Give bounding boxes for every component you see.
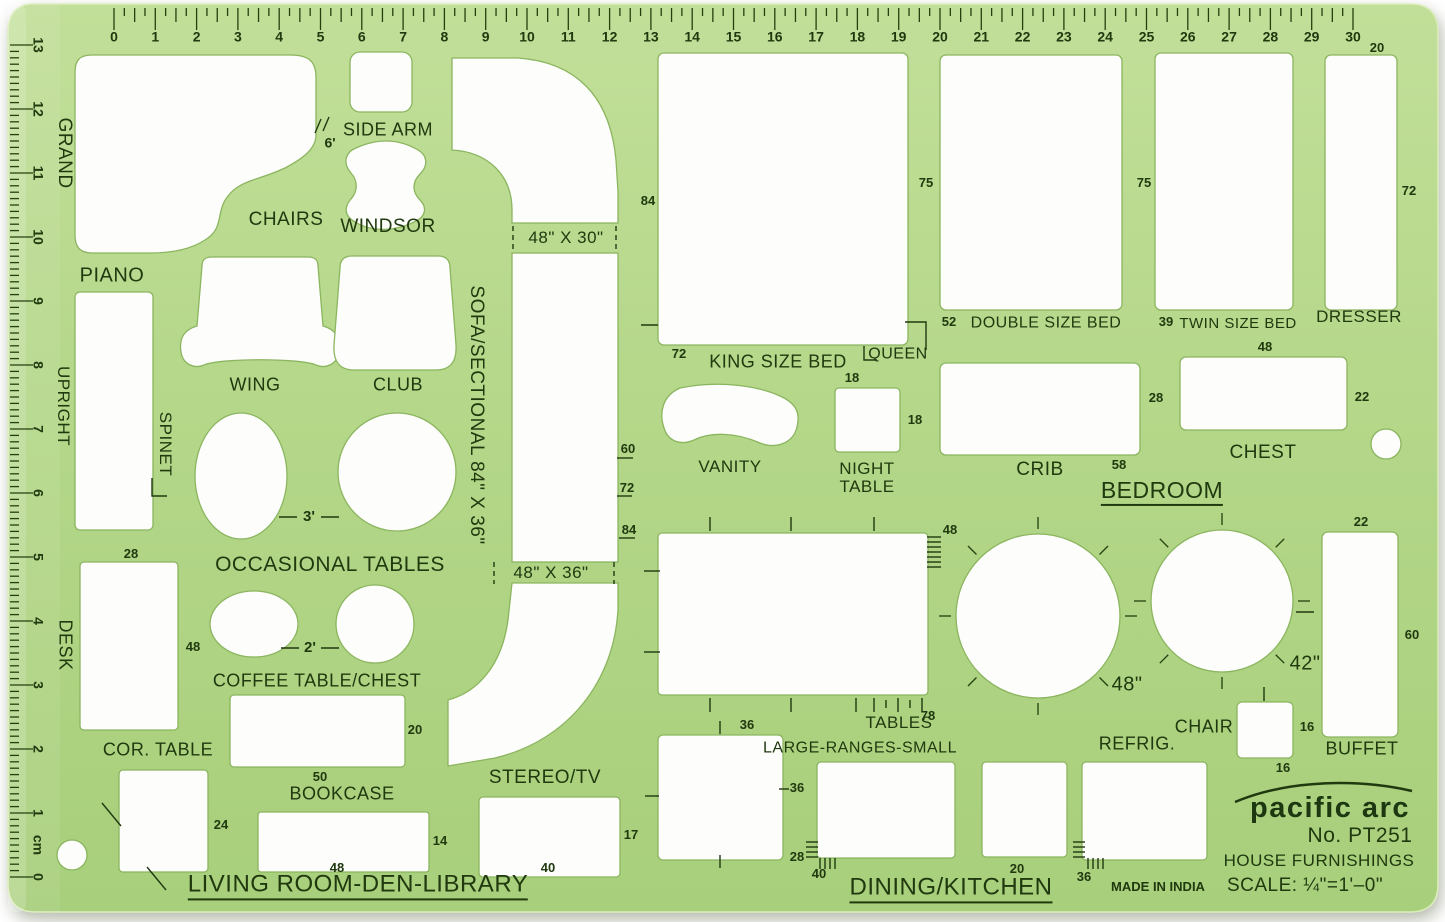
dim-twin-39: 39 [1159,315,1173,329]
ruler-top-number: 18 [850,30,866,45]
dim-dining-48: 48 [943,523,957,537]
coffee-table-cutout [230,695,405,767]
twin-bed-cutout [1155,53,1293,310]
label-side-arm: SIDE ARM [343,121,433,140]
ruler-top-number: 6 [358,30,366,45]
ruler-top-number: 2 [193,30,201,45]
dim-sq-28: 28 [790,850,804,864]
dim-double-52: 52 [942,315,956,329]
upright-piano-cutout [75,292,153,530]
ruler-top-number: 23 [1056,30,1072,45]
ruler-top-number: 29 [1304,30,1320,45]
oval-table-cutout [195,413,287,539]
double-bed-cutout [940,55,1122,310]
template-photo: GRAND UPRIGHT SPINET DESK SOFA/SECTIONAL… [0,0,1445,922]
ruler-left-number: 8 [31,361,46,369]
dresser-cutout [1325,55,1397,310]
dim-coffee-20: 20 [408,723,422,737]
ruler-left-number: 1 [31,809,46,817]
corner-table-cutout [119,770,208,872]
dim-3ft: 3' [303,509,315,525]
ruler-top-number: 10 [519,30,535,45]
label-queen: QUEEN [868,347,927,364]
ruler-top-number: 17 [808,30,824,45]
label-sofa-sectional: SOFA/SECTIONAL 84" X 36" [466,285,486,544]
ruler-top-number: 13 [643,30,659,45]
label-crib: CRIB [1016,460,1063,480]
ruler-left-number: 10 [31,229,46,245]
ruler-left-number: 13 [31,37,46,53]
dim-chair-16a: 16 [1300,720,1314,734]
label-chairs: CHAIRS [249,210,324,230]
brand-product: HOUSE FURNISHINGS [1224,852,1415,870]
dim-double-75: 75 [919,176,933,190]
round-table-cutout [338,413,456,531]
dim-book-14: 14 [433,834,447,848]
ruler-left-number: 11 [31,166,46,181]
dim-sq-36a: 36 [740,718,754,732]
label-chair: CHAIR [1175,718,1234,737]
label-club: CLUB [373,376,423,395]
ruler-left-number: 12 [31,101,46,117]
brand-scale: SCALE: ¼"=1'–0" [1227,876,1383,896]
dim-sofa-bridge2: 48" X 36" [513,564,588,582]
range-small-cutout [982,762,1067,857]
dim-side-72: 72 [620,481,634,495]
ruler-top-number: 24 [1097,30,1113,45]
ruler-top-number: 30 [1345,30,1361,45]
dim-chest-22: 22 [1355,390,1369,404]
dining-chair-cutout [1237,702,1293,758]
hanging-hole-left [57,840,87,870]
dim-book-50: 50 [313,770,327,784]
dim-dresser-20: 20 [1370,41,1384,55]
ruler-top-number: 20 [932,30,948,45]
ruler-top-number: 11 [561,30,576,45]
label-dresser: DRESSER [1316,308,1402,326]
label-bookcase: BOOKCASE [289,785,394,804]
club-chair-cutout [334,256,456,370]
side-arm-chair-cutout [350,52,412,112]
dim-dresser-72: 72 [1402,184,1416,198]
brand-logo: pacific arc [1250,793,1410,823]
ruler-top-number: 3 [234,30,242,45]
round-table-42-cutout [1151,530,1293,672]
label-king-bed: KING SIZE BED [709,353,847,372]
dim-crib-28: 28 [1149,391,1163,405]
dim-buffet-22: 22 [1354,515,1368,529]
dim-6ft: 6' [324,136,335,151]
label-refrig: REFRIG. [1099,735,1176,754]
ruler-top-number: 7 [399,30,407,45]
dim-stereo-17: 17 [624,828,638,842]
dim-2ft: 2' [304,640,316,656]
label-spinet: SPINET [156,412,174,476]
dim-night-18a: 18 [845,371,859,385]
desk-cutout [80,562,178,730]
ruler-top-number: 12 [602,30,618,45]
label-tables: TABLES [866,714,933,732]
ruler-left-number: 0 [31,873,46,881]
section-bedroom: BEDROOM [1101,478,1223,506]
night-table-cutout [835,388,900,452]
dim-king-72: 72 [672,347,686,361]
ruler-top-number: 9 [482,30,490,45]
brand-model: No. PT251 [1308,825,1413,847]
hanging-hole-right [1371,429,1401,459]
dim-buffet-60: 60 [1405,628,1419,642]
sofa-straight-cutout [512,253,618,562]
ruler-top-number: 21 [974,30,990,45]
ruler-left-number: 7 [31,425,46,433]
ruler-top-number: 25 [1139,30,1155,45]
dim-sofa-bridge1: 48" X 30" [528,229,603,247]
range-mid-cutout [817,762,955,858]
dim-desk-48: 48 [186,640,200,654]
ruler-top-number: 22 [1015,30,1031,45]
ruler-left-number: 2 [31,745,46,753]
section-dining-kitchen: DINING/KITCHEN [849,874,1052,903]
ruler-top-number: 15 [726,30,742,45]
chest-cutout [1180,357,1347,430]
label-buffet: BUFFET [1326,740,1399,759]
king-bed-cutout [658,53,908,345]
dim-stereo-40: 40 [541,861,555,875]
ruler-top-number: 0 [110,30,118,45]
refrigerator-cutout [1082,762,1207,860]
ruler-top-number: 8 [440,30,448,45]
ruler-left-number: 6 [31,489,46,497]
buffet-cutout [1322,532,1398,737]
occasional-round-cutout [336,585,414,663]
ruler-left-number: 9 [31,297,46,305]
wing-chair-cutout [181,257,340,366]
dining-table-cutout [658,533,928,695]
ruler-top-number: 27 [1221,30,1237,45]
dim-cor-24: 24 [214,818,228,832]
dim-round-42: 42" [1290,654,1321,675]
dim-desk-28: 28 [124,547,138,561]
dim-side-84: 84 [622,523,636,537]
label-night-table: NIGHT TABLE [824,460,910,496]
label-coffee-table: COFFEE TABLE/CHEST [213,672,421,691]
brand-origin: MADE IN INDIA [1111,880,1205,894]
label-twin-bed: TWIN SIZE BED [1179,316,1296,332]
ruler-top-number: 16 [767,30,783,45]
occasional-oval-cutout [210,591,298,657]
label-piano: PIANO [80,266,145,287]
dim-sq-40: 40 [812,867,826,881]
ruler-left-number: 4 [31,617,46,625]
dim-crib-58: 58 [1112,458,1126,472]
ruler-top-number: 19 [891,30,907,45]
crib-cutout [940,363,1140,455]
ruler-top-number: 4 [275,30,283,45]
label-grand: GRAND [54,117,74,188]
ruler-left-number: 3 [31,681,46,689]
ruler-top-number: 5 [317,30,325,45]
ruler-top-number: 28 [1263,30,1279,45]
ruler-left-strip [8,4,26,912]
label-occasional-tables: OCCASIONAL TABLES [215,554,445,576]
label-wing: WING [230,376,281,395]
dim-chest-48: 48 [1258,340,1272,354]
ruler-top-number: 1 [151,30,159,45]
section-living-room: LIVING ROOM-DEN-LIBRARY [188,871,528,900]
ruler-top-number: 26 [1180,30,1196,45]
label-cm-unit: cm [31,835,46,855]
dim-chair-16b: 16 [1276,761,1290,775]
dim-night-18b: 18 [908,413,922,427]
ruler-left-number: 5 [31,553,46,561]
dim-twin-75: 75 [1137,176,1151,190]
label-desk: DESK [56,619,75,670]
label-double-bed: DOUBLE SIZE BED [971,316,1122,333]
round-table-48-cutout [956,534,1120,698]
dim-refrig-36: 36 [1077,870,1091,884]
label-upright: UPRIGHT [54,366,72,446]
label-vanity: VANITY [698,458,761,476]
label-large-ranges-small: LARGE-RANGES-SMALL [763,741,957,758]
dim-king-84: 84 [641,194,655,208]
label-windsor: WINDSOR [340,217,435,237]
label-chest: CHEST [1230,443,1297,463]
dim-round-48: 48" [1112,675,1143,696]
label-cor-table: COR. TABLE [103,741,213,760]
dim-sq-36b: 36 [790,781,804,795]
ruler-top-number: 14 [684,30,700,45]
label-stereo-tv: STEREO/TV [489,768,601,788]
dim-side-60: 60 [621,442,635,456]
